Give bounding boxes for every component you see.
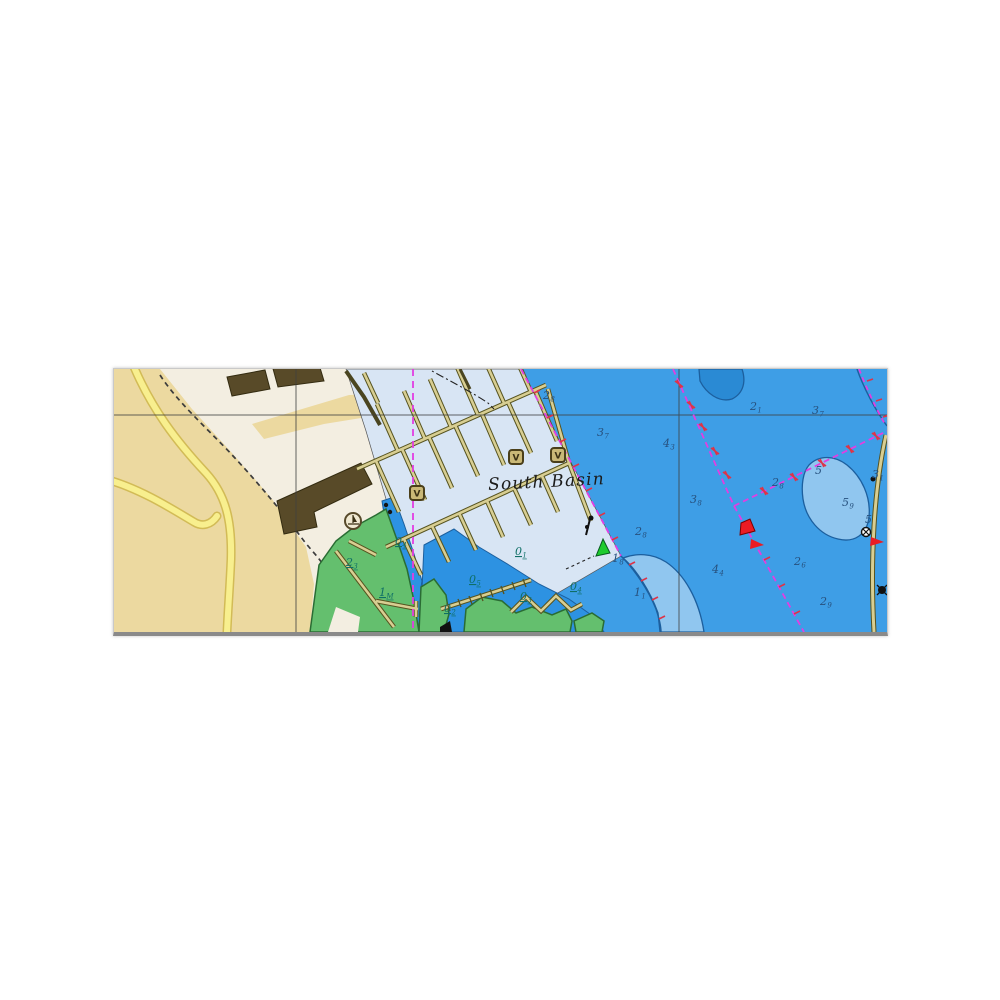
marina-symbol (345, 513, 361, 529)
badge-letter: V (513, 454, 520, 464)
badge-letter: V (414, 490, 421, 500)
marina-v-badge: V (551, 448, 565, 462)
nautical-chart[interactable]: South Basin VVV 283743213738285315952818… (113, 368, 888, 636)
marina-v-badge: V (509, 450, 523, 464)
depth-sounding: 5 (815, 464, 822, 477)
marina-v-badge: V (410, 486, 424, 500)
depth-sounding: 5 (865, 513, 872, 526)
badge-letter: V (555, 452, 562, 462)
chart-canvas[interactable]: South Basin VVV 283743213738285315952818… (114, 369, 887, 632)
screenshot-page: South Basin VVV 283743213738285315952818… (0, 0, 1000, 1000)
